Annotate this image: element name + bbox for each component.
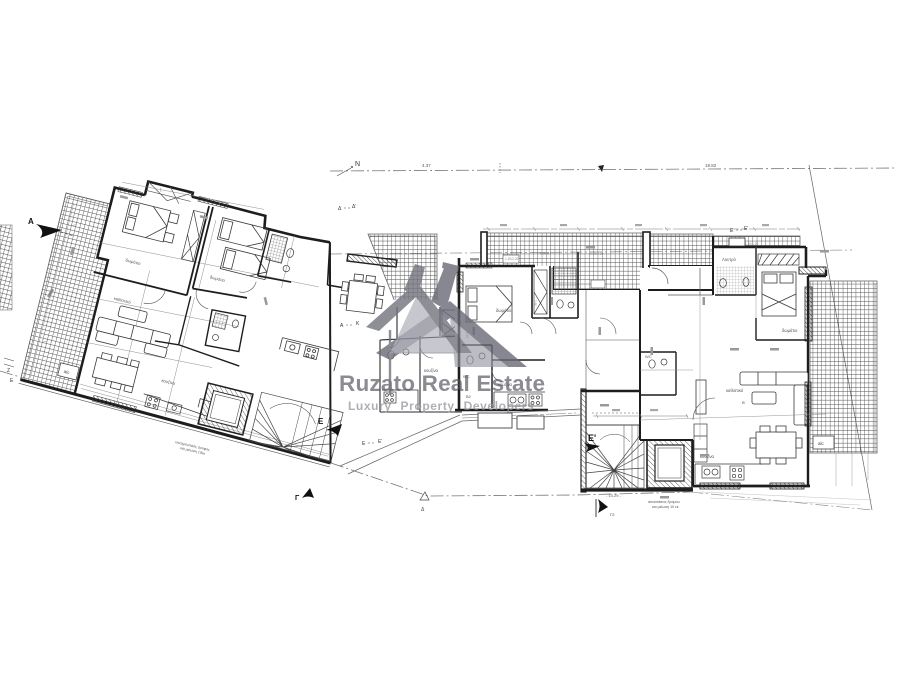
svg-text:N: N	[355, 161, 360, 168]
svg-text:Ε': Ε'	[378, 439, 382, 445]
svg-text:1.20/2.20: 1.20/2.20	[505, 257, 519, 261]
svg-text:Luxury Property Developers: Luxury Property Developers	[348, 399, 534, 413]
svg-text:Ε: Ε	[318, 417, 324, 426]
svg-text:Β': Β'	[742, 400, 746, 405]
svg-text:A: A	[28, 217, 34, 226]
svg-text:1.40/1.20: 1.40/1.20	[745, 242, 759, 246]
svg-text:0.90/2.20: 0.90/2.20	[590, 252, 604, 256]
svg-text:Ε': Ε'	[744, 226, 748, 232]
svg-text:αποστάσεις δρόμου: αποστάσεις δρόμου	[648, 500, 680, 504]
svg-text:Ruzato Real Estate: Ruzato Real Estate	[339, 371, 545, 396]
svg-text:Λουτρό: Λουτρό	[722, 257, 736, 262]
svg-text:Z: Z	[7, 368, 10, 374]
svg-text:2.80: 2.80	[533, 300, 537, 306]
svg-text:4.37: 4.37	[422, 163, 431, 168]
svg-text:Ε': Ε'	[588, 433, 596, 443]
svg-text:δωμάτιο: δωμάτιο	[782, 328, 798, 333]
svg-text:Δ': Δ'	[352, 204, 356, 210]
svg-text:19.82: 19.82	[705, 163, 717, 168]
svg-text:καθιστικό: καθιστικό	[726, 388, 744, 393]
svg-text:- 14.29 -: - 14.29 -	[606, 493, 622, 498]
svg-text:δωμάτιο: δωμάτιο	[496, 308, 512, 313]
svg-text:alc: alc	[818, 441, 825, 446]
svg-text:και μείωση 10 εκ: και μείωση 10 εκ	[652, 505, 679, 509]
svg-text:Γ2: Γ2	[610, 512, 615, 517]
